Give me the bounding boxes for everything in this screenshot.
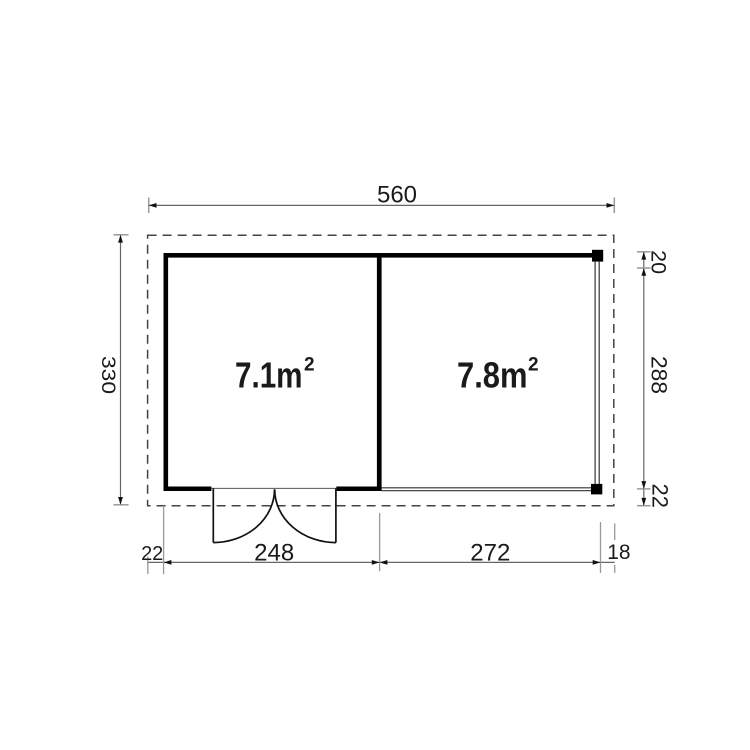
svg-text:248: 248	[254, 539, 294, 566]
svg-text:7.1m: 7.1m	[235, 355, 303, 396]
svg-text:18: 18	[607, 541, 630, 564]
svg-text:2: 2	[528, 354, 539, 375]
svg-text:20: 20	[647, 250, 671, 274]
svg-text:272: 272	[470, 539, 510, 566]
svg-text:330: 330	[97, 356, 119, 394]
svg-text:7.8m: 7.8m	[457, 354, 528, 395]
svg-text:560: 560	[377, 181, 417, 208]
svg-text:2: 2	[304, 355, 315, 376]
svg-text:22: 22	[141, 543, 163, 565]
svg-text:22: 22	[648, 483, 673, 507]
svg-text:288: 288	[647, 356, 672, 394]
